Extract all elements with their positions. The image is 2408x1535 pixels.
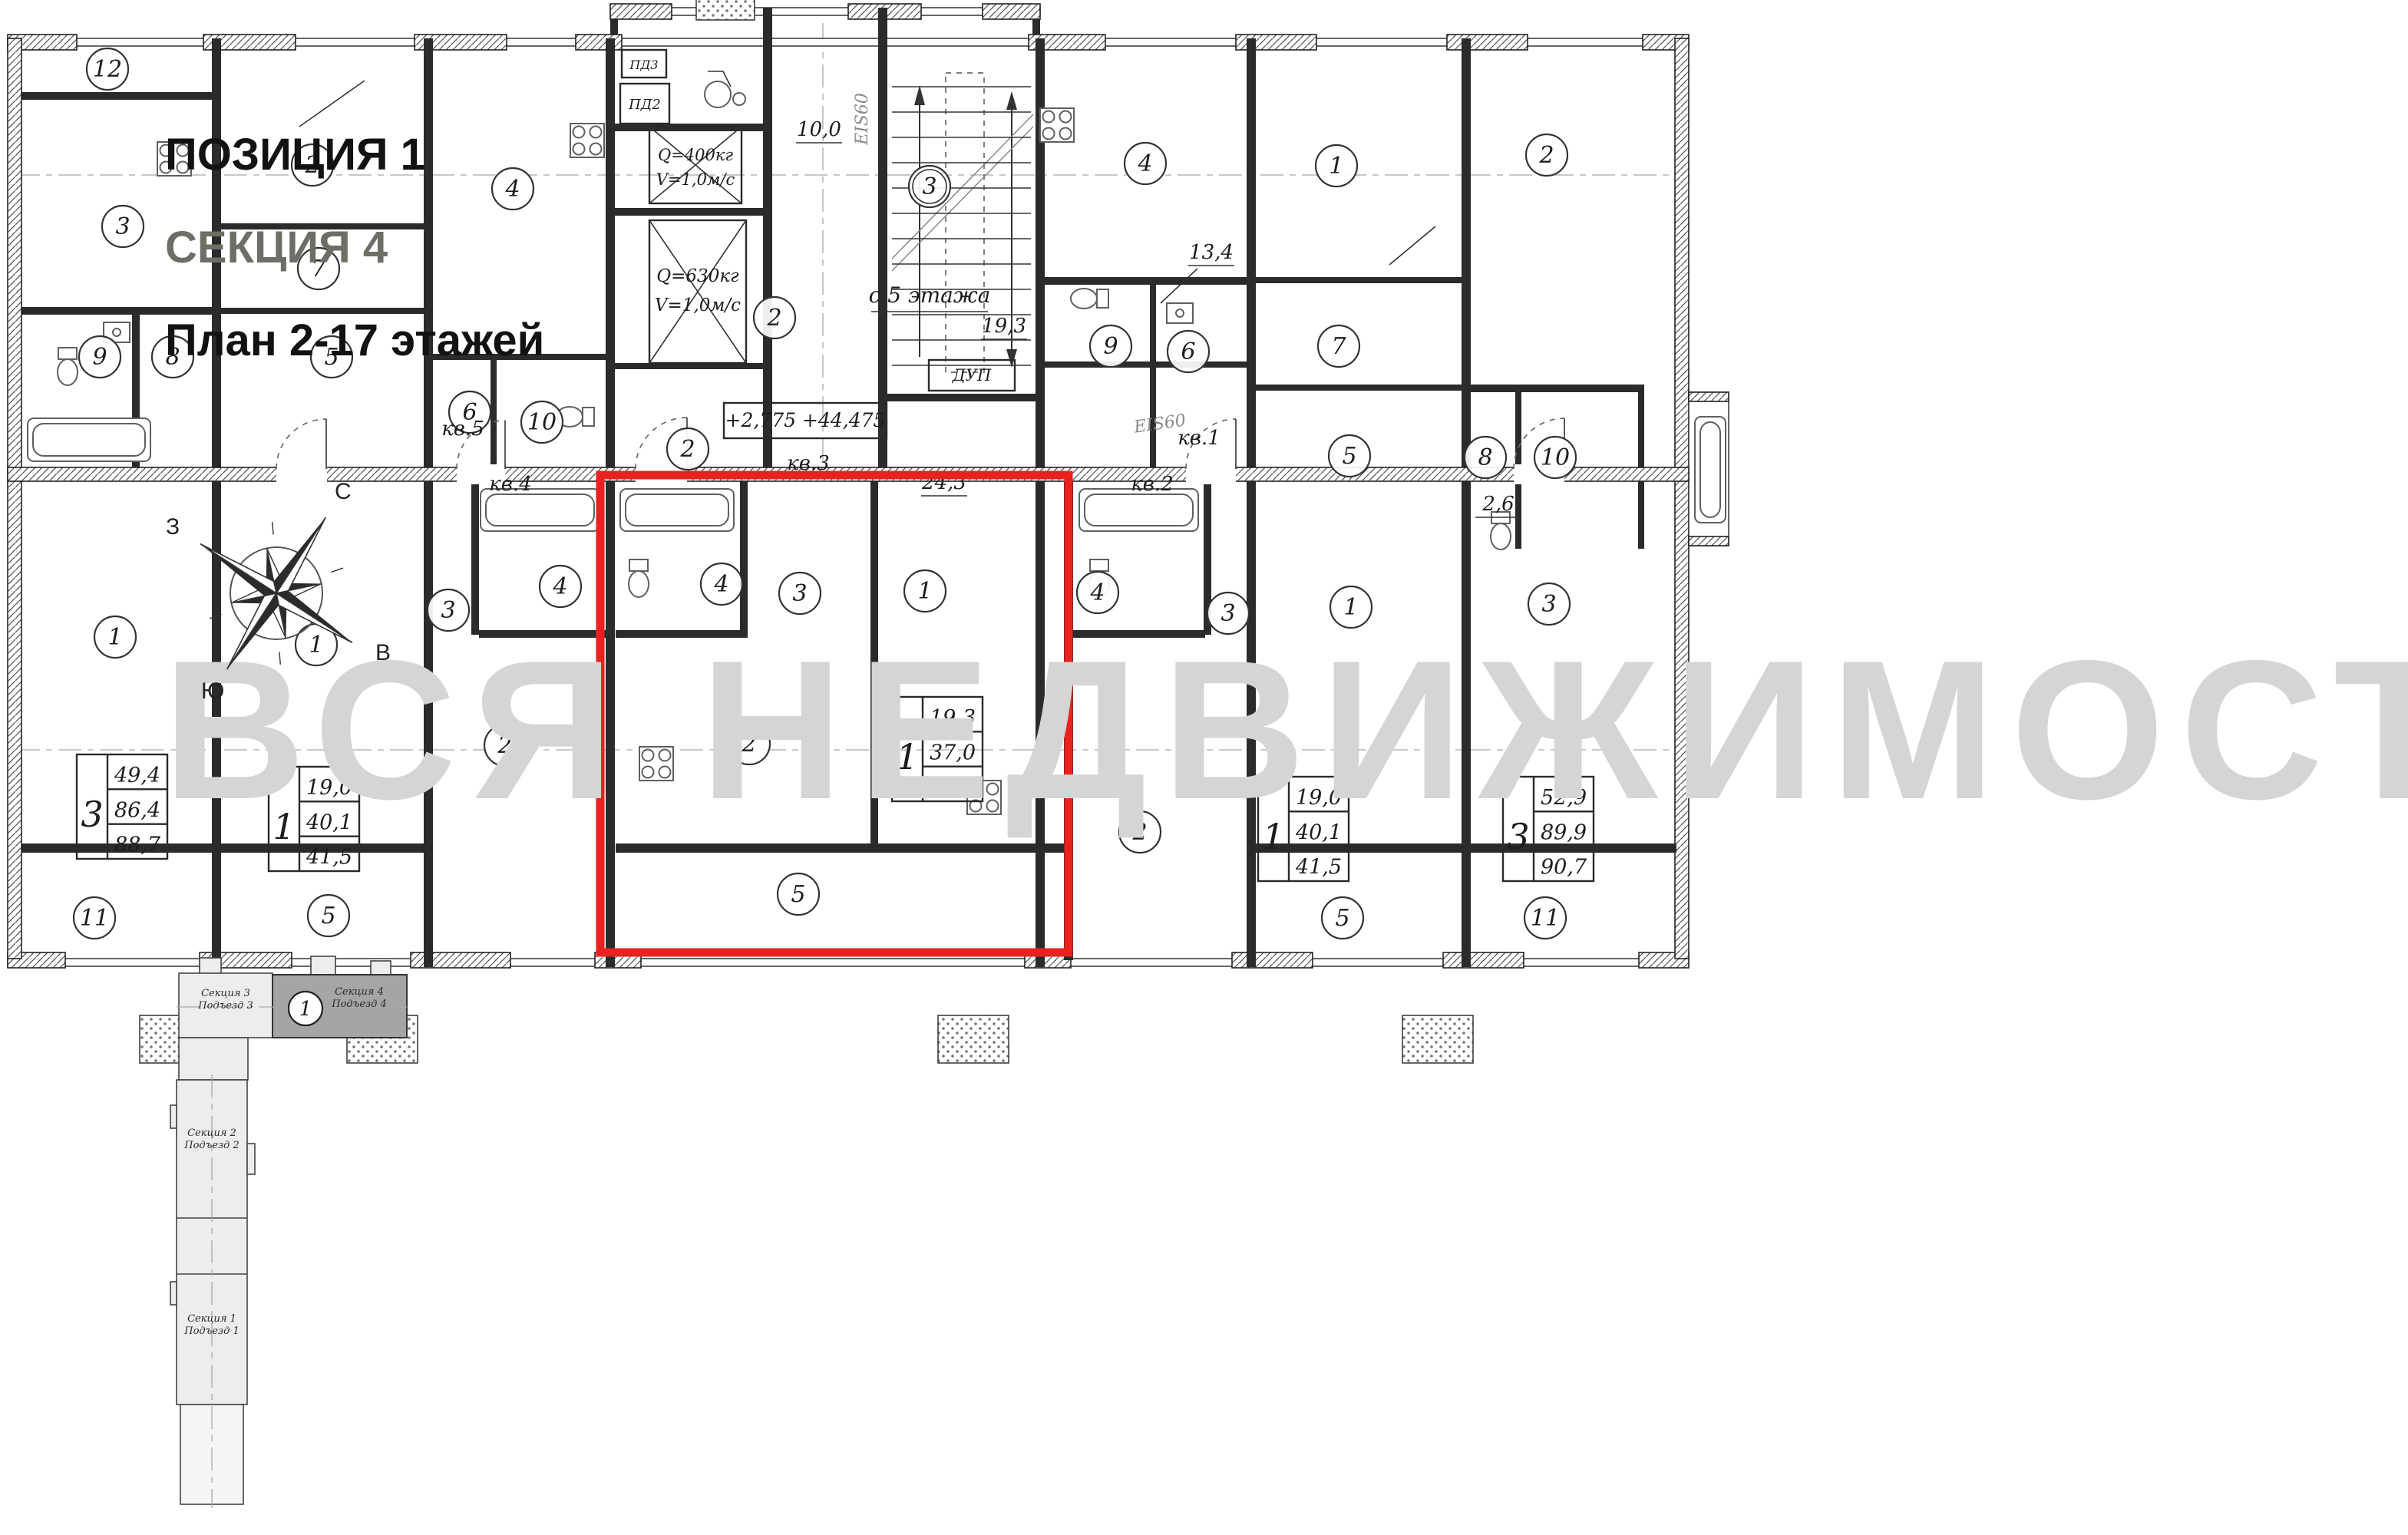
plan-line [196, 544, 276, 601]
room-number: 7 [1331, 333, 1346, 360]
apartment-area-value: 41,5 [1295, 856, 1342, 880]
plan-line [491, 357, 497, 470]
plan-line [573, 144, 585, 155]
tower-window-band [610, 8, 1040, 15]
map-position-number: 1 [299, 998, 312, 1021]
room-number-circle: 8 [1465, 437, 1506, 478]
room-number: 11 [80, 905, 109, 932]
plan-line [1006, 91, 1017, 110]
plan-line [629, 571, 649, 597]
room-number: 4 [1137, 150, 1152, 177]
dim-label: 13,4 [1189, 241, 1234, 264]
map-section1-entrance: Подъезд 1 [183, 1325, 239, 1337]
plan-line [1447, 35, 1528, 50]
room-number-circle: 1 [904, 570, 946, 612]
room-number: 4 [1089, 579, 1105, 606]
stair-note: с 5 этажа [869, 282, 991, 308]
balcony-pad [696, 0, 755, 20]
plan-line [1471, 843, 1676, 853]
room-number-circle: 5 [1322, 897, 1363, 939]
plan-line [590, 127, 602, 138]
balcony-pad [938, 1015, 1009, 1063]
room-number-circle: 9 [79, 336, 121, 378]
dim-label: 19,3 [982, 315, 1026, 338]
plan-line [210, 610, 221, 622]
plan-line [763, 8, 772, 470]
plan-line [1186, 464, 1236, 484]
page-title: ПОЗИЦИЯ 1 [165, 129, 544, 180]
left-exterior-wall [8, 38, 21, 959]
stove-icon [1040, 108, 1074, 142]
wheelchair-icon [705, 71, 745, 107]
plan-line [1389, 226, 1435, 265]
map-section4-entrance: Подъезд 4 [331, 999, 387, 1010]
stove-icon [570, 124, 604, 157]
map-section4-name: Секция 4 [335, 986, 384, 998]
room-number-circle: 11 [74, 897, 115, 939]
plan-line [1256, 277, 1462, 283]
room-number-circle: 6 [1168, 331, 1209, 372]
room-number: 3 [1541, 591, 1556, 618]
room-number: 12 [93, 56, 122, 83]
map-tab [170, 1282, 177, 1305]
plan-line [276, 586, 357, 643]
bathtub-inner [1085, 494, 1193, 526]
room-number: 4 [552, 573, 567, 600]
floors-subtitle: План 2-17 этажей [165, 315, 544, 366]
plan-line [170, 956, 391, 1504]
plan-line [269, 513, 326, 593]
bathtub-inner [33, 424, 145, 456]
apartment-label: кв.2 [1131, 473, 1173, 496]
room-number-circle: 4 [1125, 143, 1166, 184]
plan-line [1090, 560, 1108, 571]
page: ВСЯ НЕДВИЖИМОСТЬ ПОЗИЦИЯ 1 СЕКЦИЯ 4 План… [0, 0, 2408, 1535]
pd3-label: ПД3 [629, 58, 658, 72]
room-number-circle: 1 [94, 616, 136, 658]
room-number: 1 [917, 578, 932, 605]
map-tab [247, 1144, 255, 1174]
room-number-circle: 3 [779, 573, 821, 614]
apartment-area-value: 88,7 [114, 834, 161, 857]
room-number-circle: 11 [1524, 897, 1566, 939]
plan-line [1232, 952, 1313, 968]
plan-line [1045, 277, 1248, 285]
room-number-circle: 9 [1090, 325, 1131, 367]
room-number: 5 [791, 881, 805, 908]
apartment-area-value: 90,7 [1541, 856, 1587, 880]
room-number-circle: 12 [87, 48, 128, 90]
plan-line [58, 348, 77, 359]
map-section3-entrance: Подъезд 3 [197, 1000, 253, 1012]
plan-line [878, 8, 887, 470]
toilet-icon [1071, 289, 1108, 309]
room-number-circle: 4 [1077, 572, 1118, 613]
room-number: 5 [1335, 905, 1349, 932]
room-number: 3 [792, 580, 807, 607]
room-number-circle: 1 [1316, 145, 1357, 187]
room-number: 8 [1478, 444, 1492, 471]
apartment-table: 349,486,488,7 [77, 754, 167, 859]
map-connector [179, 1038, 248, 1080]
room-number-circle: 5 [778, 873, 819, 915]
plan-line [1689, 536, 1729, 546]
dim-label: 2,6 [1481, 493, 1514, 516]
room-number: 1 [1329, 153, 1343, 180]
plan-line [1161, 269, 1197, 303]
room-number: 3 [922, 173, 936, 200]
title-block: ПОЗИЦИЯ 1 СЕКЦИЯ 4 План 2-17 этажей [165, 129, 544, 366]
plan-line [21, 92, 213, 100]
plan-line [471, 481, 479, 635]
room-number: 3 [115, 213, 130, 240]
map-section2-name: Секция 2 [187, 1127, 236, 1139]
fire-rating-label: EIS60 [853, 93, 872, 146]
plan-line [1256, 385, 1462, 391]
toilet-icon [58, 348, 78, 385]
room-number-circle: 10 [1534, 437, 1576, 478]
plan-line [615, 208, 766, 216]
bathtub-inner [626, 494, 728, 526]
plan-line [583, 408, 594, 426]
plan-line [113, 328, 121, 336]
plan-line [629, 560, 648, 571]
plan-line [616, 843, 1065, 853]
room-number-circle: 4 [540, 566, 581, 607]
room-number: 4 [713, 571, 728, 598]
room-number: 10 [527, 409, 557, 436]
map-tab [200, 958, 221, 975]
plan-line [1491, 523, 1511, 550]
room-number: 11 [1531, 905, 1560, 932]
section-subtitle: СЕКЦИЯ 4 [165, 222, 544, 273]
plan-line [573, 127, 585, 138]
room-number: 1 [107, 624, 122, 651]
apartment-rooms-count: 3 [81, 794, 103, 835]
pd2-label: ПД2 [628, 97, 661, 113]
plan-line [1060, 111, 1072, 123]
room-number: 2 [1538, 142, 1554, 169]
plan-line [299, 81, 365, 127]
plan-line [1638, 385, 1644, 549]
plan-line [1176, 309, 1184, 317]
room-number-circle: 2 [1526, 134, 1567, 176]
bathtub-inner [486, 494, 594, 526]
plan-line [58, 359, 78, 385]
plan-line [705, 81, 731, 107]
map-tab [170, 1105, 177, 1128]
plan-line [610, 4, 672, 19]
plan-line [1071, 289, 1097, 309]
plan-line [267, 522, 279, 534]
balcony-pad [1402, 1015, 1473, 1063]
compass-rose-icon: С В Ю З [154, 451, 399, 720]
room-number: 9 [92, 344, 107, 371]
room-number: 2 [766, 305, 781, 332]
apartment-area-value: 49,4 [114, 764, 160, 787]
plan-line [983, 4, 1040, 19]
apartment-label: кв.5 [441, 418, 484, 441]
plan-line [1043, 128, 1055, 140]
plan-line [1443, 952, 1524, 968]
room-number: 2 [679, 436, 695, 463]
room-number-circle: 4 [701, 563, 742, 605]
plan-line [227, 593, 284, 674]
room-number-circle: 10 [521, 401, 563, 443]
bathtub-inner [1700, 422, 1720, 517]
apartment-label: кв.4 [489, 473, 531, 496]
map-tab [311, 956, 335, 975]
plan-line [274, 652, 286, 665]
plan-line [1060, 128, 1072, 140]
plan-line [914, 85, 925, 105]
plan-line [1097, 289, 1108, 308]
plan-line [946, 73, 984, 372]
plan-line [1689, 392, 1729, 401]
plan-line [332, 564, 343, 576]
dim-label: 10,0 [797, 118, 841, 141]
room-number: 9 [1103, 333, 1118, 360]
compass-east-label: В [375, 640, 391, 665]
compass-south-label: Ю [201, 678, 224, 704]
sink-icon [1167, 303, 1193, 323]
room-number: 6 [1181, 338, 1195, 365]
map-tab [371, 961, 391, 975]
elevator1-speed: V=1,0м/с [656, 170, 735, 189]
map-section2-entrance: Подъезд 2 [183, 1140, 239, 1151]
room-number-circle: 7 [1318, 325, 1359, 367]
apartment-area-value: 41,5 [306, 846, 352, 870]
map-section1-name: Секция 1 [187, 1313, 236, 1325]
apartment-label: кв.1 [1178, 427, 1220, 450]
plan-line [887, 394, 1037, 401]
map-section3-name: Секция 3 [201, 988, 250, 999]
plan-line [1471, 385, 1644, 392]
room-number-circle: 3 [102, 206, 144, 247]
elevator2-speed: V=1,0м/с [655, 295, 741, 315]
elevator2-capacity: Q=630кг [656, 266, 739, 286]
room-number: 1 [1343, 594, 1358, 621]
room-number-circle: 3 [909, 166, 950, 207]
room-number-circle: 5 [1329, 435, 1370, 477]
plan-line [1150, 280, 1156, 470]
toilet-icon [629, 560, 649, 597]
plan-line [1045, 361, 1248, 368]
elevator1-capacity: Q=400кг [658, 146, 733, 164]
room-number: 5 [1342, 443, 1356, 470]
room-number-circle: 2 [754, 297, 795, 338]
apartment-area-value: 86,4 [114, 798, 160, 822]
room-number: 10 [1541, 444, 1570, 471]
compass-north-label: С [335, 479, 352, 504]
location-map: 1 Секция 3 Подъезд 3 Секция 4 Подъезд 4 … [154, 913, 430, 1520]
plan-line [615, 363, 766, 369]
compass-star [154, 468, 399, 718]
plan-line [740, 481, 748, 635]
room-number-circle: 2 [667, 428, 709, 470]
compass-west-label: З [166, 514, 180, 540]
level-mark: +2,775 +44,475 [725, 409, 886, 431]
plan-line [590, 144, 602, 155]
dup-label: ДУП [952, 366, 992, 385]
plan-line [733, 93, 745, 105]
plan-line [1043, 111, 1055, 123]
plan-line [1256, 843, 1463, 853]
watermark-text: ВСЯ НЕДВИЖИМОСТЬ [163, 631, 2408, 829]
